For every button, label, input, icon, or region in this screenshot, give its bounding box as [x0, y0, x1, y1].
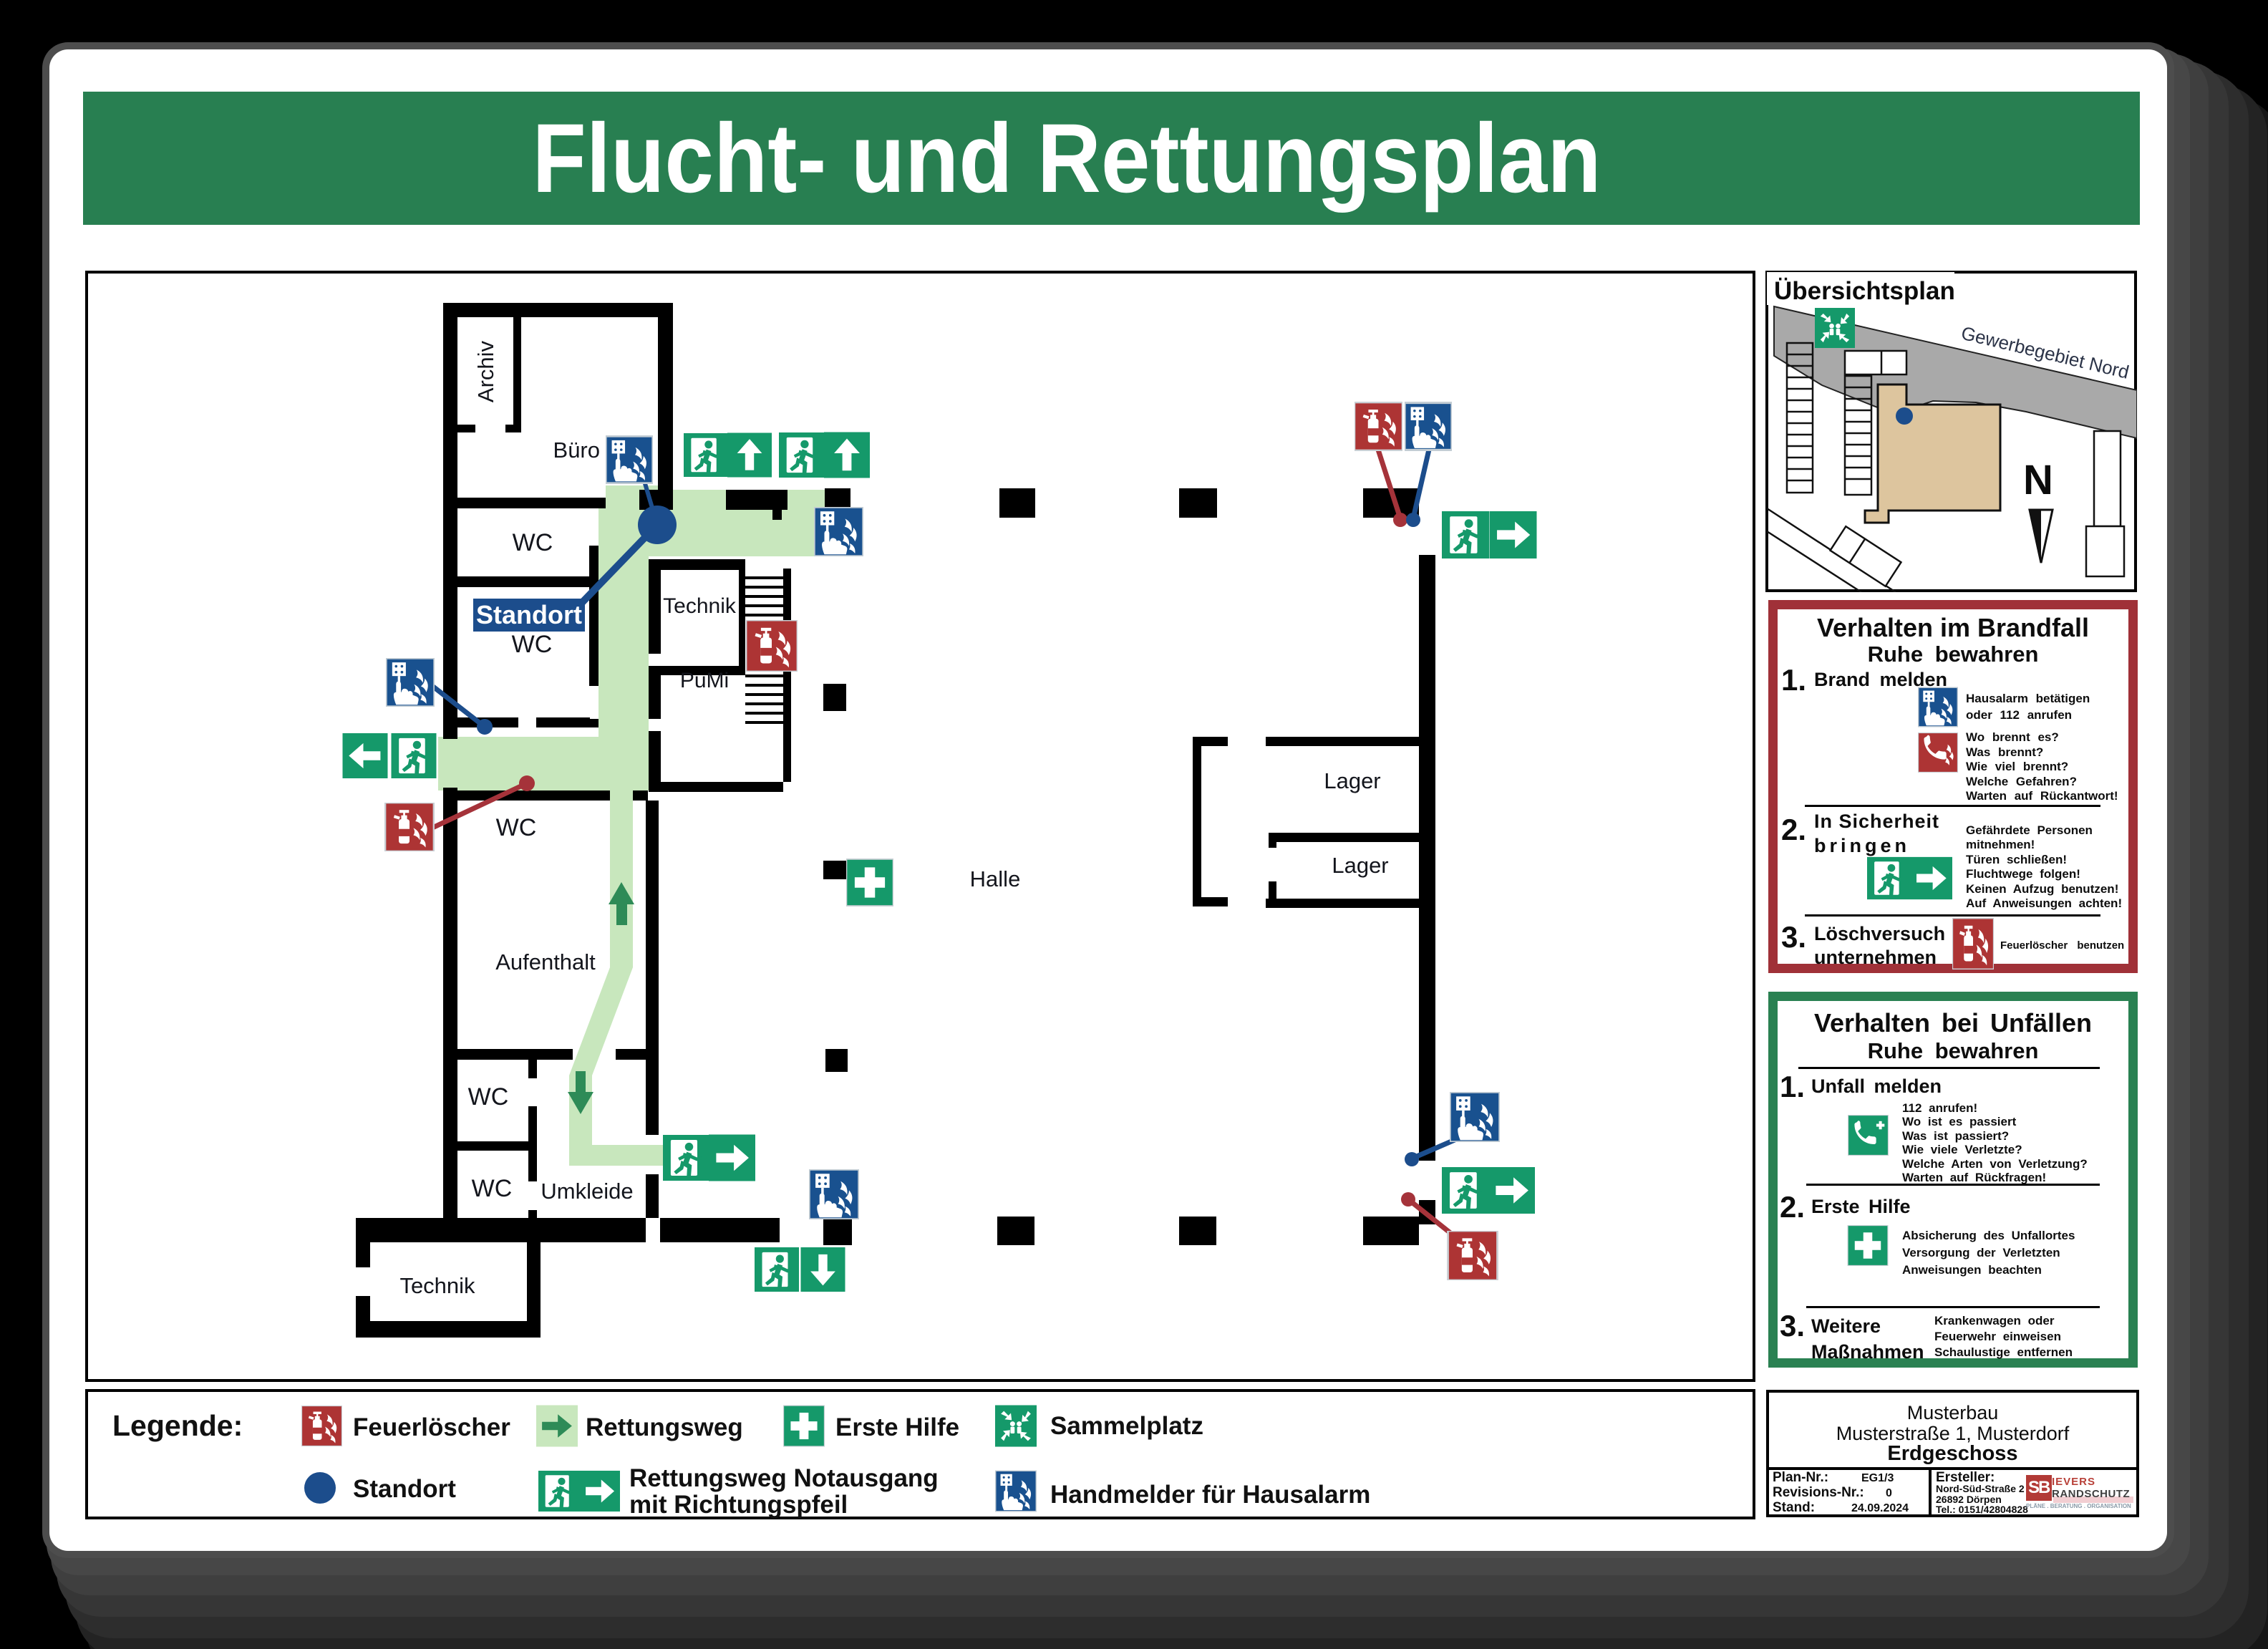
- svg-text:Lager: Lager: [1332, 853, 1388, 878]
- svg-text:N: N: [2023, 457, 2053, 503]
- svg-text:Aufenthalt: Aufenthalt: [495, 949, 596, 975]
- svg-text:Archiv: Archiv: [473, 340, 498, 402]
- svg-text:Technik: Technik: [399, 1273, 475, 1298]
- svg-text:Büro: Büro: [553, 437, 600, 463]
- svg-text:Übersichtsplan: Übersichtsplan: [1774, 277, 1955, 305]
- svg-text:Halle: Halle: [970, 866, 1021, 891]
- svg-text:Umkleide: Umkleide: [541, 1179, 633, 1204]
- svg-text:Standort: Standort: [476, 600, 582, 629]
- svg-text:Lager: Lager: [1324, 768, 1380, 793]
- svg-text:WC: WC: [468, 1083, 509, 1111]
- svg-text:WC: WC: [472, 1175, 513, 1202]
- svg-text:WC: WC: [512, 631, 553, 658]
- svg-text:PuMi: PuMi: [680, 669, 729, 692]
- svg-text:WC: WC: [496, 814, 537, 841]
- svg-text:WC: WC: [513, 529, 553, 556]
- svg-text:Technik: Technik: [663, 594, 737, 618]
